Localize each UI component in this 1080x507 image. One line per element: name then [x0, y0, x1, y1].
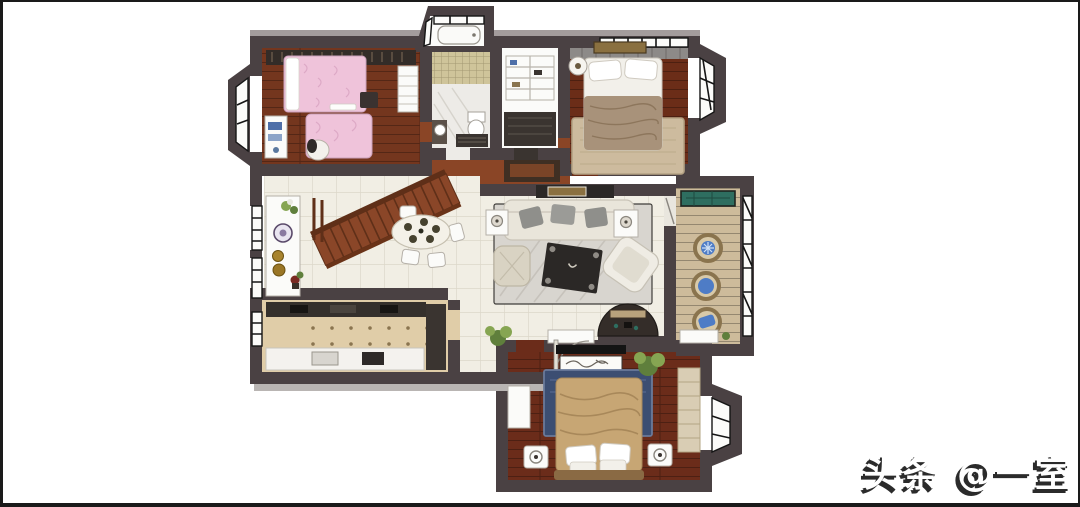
master-round-table	[569, 57, 587, 75]
bedroom-bay-window	[712, 384, 742, 466]
kids-dresser	[398, 66, 418, 112]
dining-chair	[427, 252, 445, 268]
bathroom-mat	[456, 134, 488, 147]
dining-window-2	[252, 258, 262, 298]
nightstand-left	[524, 446, 548, 468]
kitchen-tall-cabinet	[426, 304, 446, 370]
sofa-pillow	[584, 207, 608, 229]
bedroom-dresser	[508, 386, 530, 428]
bedroom-wardrobe	[678, 368, 700, 452]
master-bed	[584, 58, 662, 150]
kitchen-window	[252, 312, 262, 346]
sofa-pillow	[550, 204, 576, 225]
bedroom-bed	[554, 378, 644, 480]
master-bay-window	[700, 44, 726, 134]
floor-plan-render	[0, 0, 1080, 507]
coffee-table	[541, 242, 603, 293]
nightstand-right	[648, 444, 672, 466]
master-wall-art	[594, 42, 646, 53]
kitchen-stove	[362, 352, 384, 365]
kids-desk	[265, 116, 287, 158]
kids-bedside-table	[360, 92, 378, 108]
kids-pink-bed	[284, 56, 366, 112]
kids-bay-window	[228, 64, 250, 166]
balcony-door	[664, 196, 676, 226]
watermark-text: 头条 @一室	[863, 445, 1074, 497]
bedroom-tv	[556, 345, 626, 354]
kitchen-counter-white	[266, 348, 424, 370]
bathroom-vanity	[432, 120, 447, 144]
bed-headboard	[554, 470, 644, 480]
floor-plan-photo: 头条 @一室	[0, 0, 1080, 507]
side-table-lamp-left	[486, 210, 508, 235]
rattan-seat-1	[695, 235, 721, 261]
pouf	[494, 246, 530, 286]
balcony-plant	[722, 332, 730, 340]
rattan-seat-2	[693, 273, 719, 299]
side-table-lamp-right	[614, 210, 638, 237]
kitchen-sink	[312, 352, 338, 365]
dining-chair	[401, 249, 420, 265]
dining-window-1	[252, 206, 262, 250]
bathtub-bay-window	[414, 6, 494, 52]
balcony-window	[743, 196, 752, 336]
balcony-cabinet	[680, 330, 718, 343]
hallway	[504, 160, 560, 182]
